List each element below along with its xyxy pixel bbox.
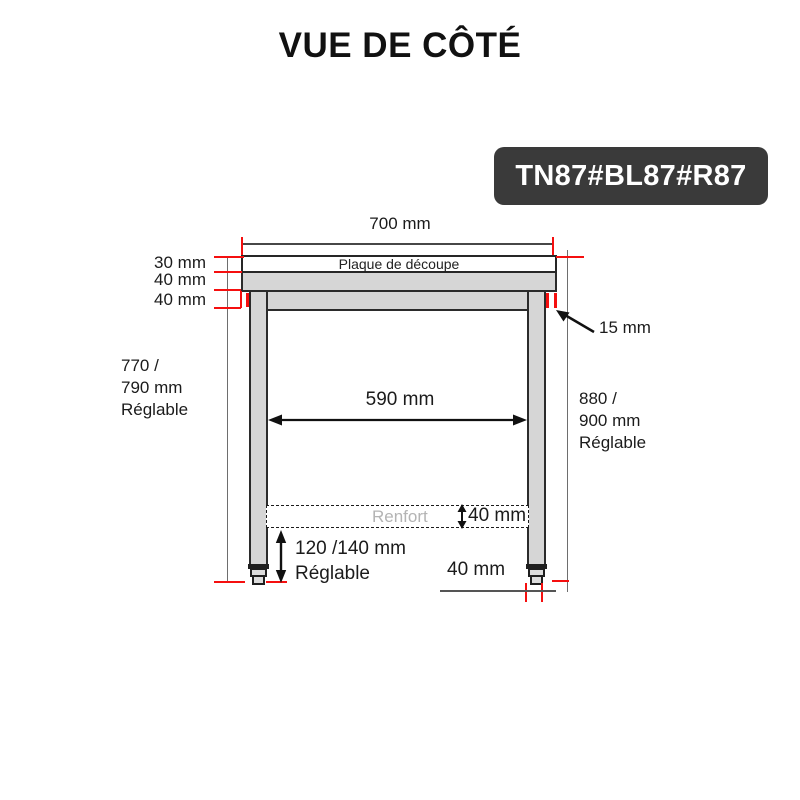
tick-30mm — [214, 256, 244, 258]
foot-adjust-arrowhead-up — [276, 530, 286, 543]
tick-leg-left-outer — [240, 291, 242, 308]
tick-40mm-mid — [214, 271, 242, 273]
foot-width-underline — [440, 590, 556, 592]
leg-thickness-label: 15 mm — [599, 318, 651, 338]
tick-foot-left-a — [214, 581, 245, 583]
cutting-board-band: Plaque de découpe — [241, 255, 557, 273]
tick-foot-right-horizontal — [552, 580, 569, 582]
tick-foot-width-left — [525, 583, 527, 602]
tick-leg-right-outer — [554, 293, 557, 308]
table-leg-right — [527, 290, 546, 567]
renfort-label: Renfort — [372, 507, 428, 527]
tick-apron-bottom — [214, 307, 241, 309]
foot-width-label: 40 mm — [447, 559, 505, 581]
tick-top-right-horizontal — [556, 256, 584, 258]
thickness-low-label: 40 mm — [130, 290, 206, 310]
dim-top-width-line — [243, 243, 553, 245]
diagram-canvas: VUE DE CÔTÉ TN87#BL87#R87 700 mm Plaque … — [0, 0, 800, 800]
tick-40mm-low — [214, 289, 241, 291]
renfort-height-label: 40 mm — [468, 505, 526, 527]
tick-foot-left-b — [266, 581, 287, 583]
dim-top-width-label: 700 mm — [340, 214, 460, 234]
height-right-label: 880 / 900 mm Réglable — [579, 388, 646, 454]
model-badge: TN87#BL87#R87 — [494, 147, 768, 205]
page-title: VUE DE CÔTÉ — [0, 26, 800, 66]
cutting-board-label: Plaque de découpe — [339, 256, 460, 272]
extension-line-right — [567, 250, 568, 592]
inner-width-arrowhead-left — [268, 415, 282, 426]
leg-thickness-arrow — [565, 315, 594, 332]
extension-line-left — [227, 257, 228, 583]
inner-width-label: 590 mm — [337, 389, 463, 411]
height-left-label: 770 / 790 mm Réglable — [121, 355, 188, 421]
foot-adjust-label: 120 /140 mm Réglable — [295, 536, 406, 586]
foot-left-lower — [252, 575, 265, 585]
table-apron — [249, 290, 546, 311]
thickness-mid-label: 40 mm — [130, 270, 206, 290]
inner-width-arrowhead-right — [513, 415, 527, 426]
tabletop-band — [241, 271, 557, 292]
tick-leg-left-inner — [246, 293, 249, 307]
tick-leg-right-inner — [546, 293, 549, 308]
tick-foot-width-right — [541, 583, 543, 602]
